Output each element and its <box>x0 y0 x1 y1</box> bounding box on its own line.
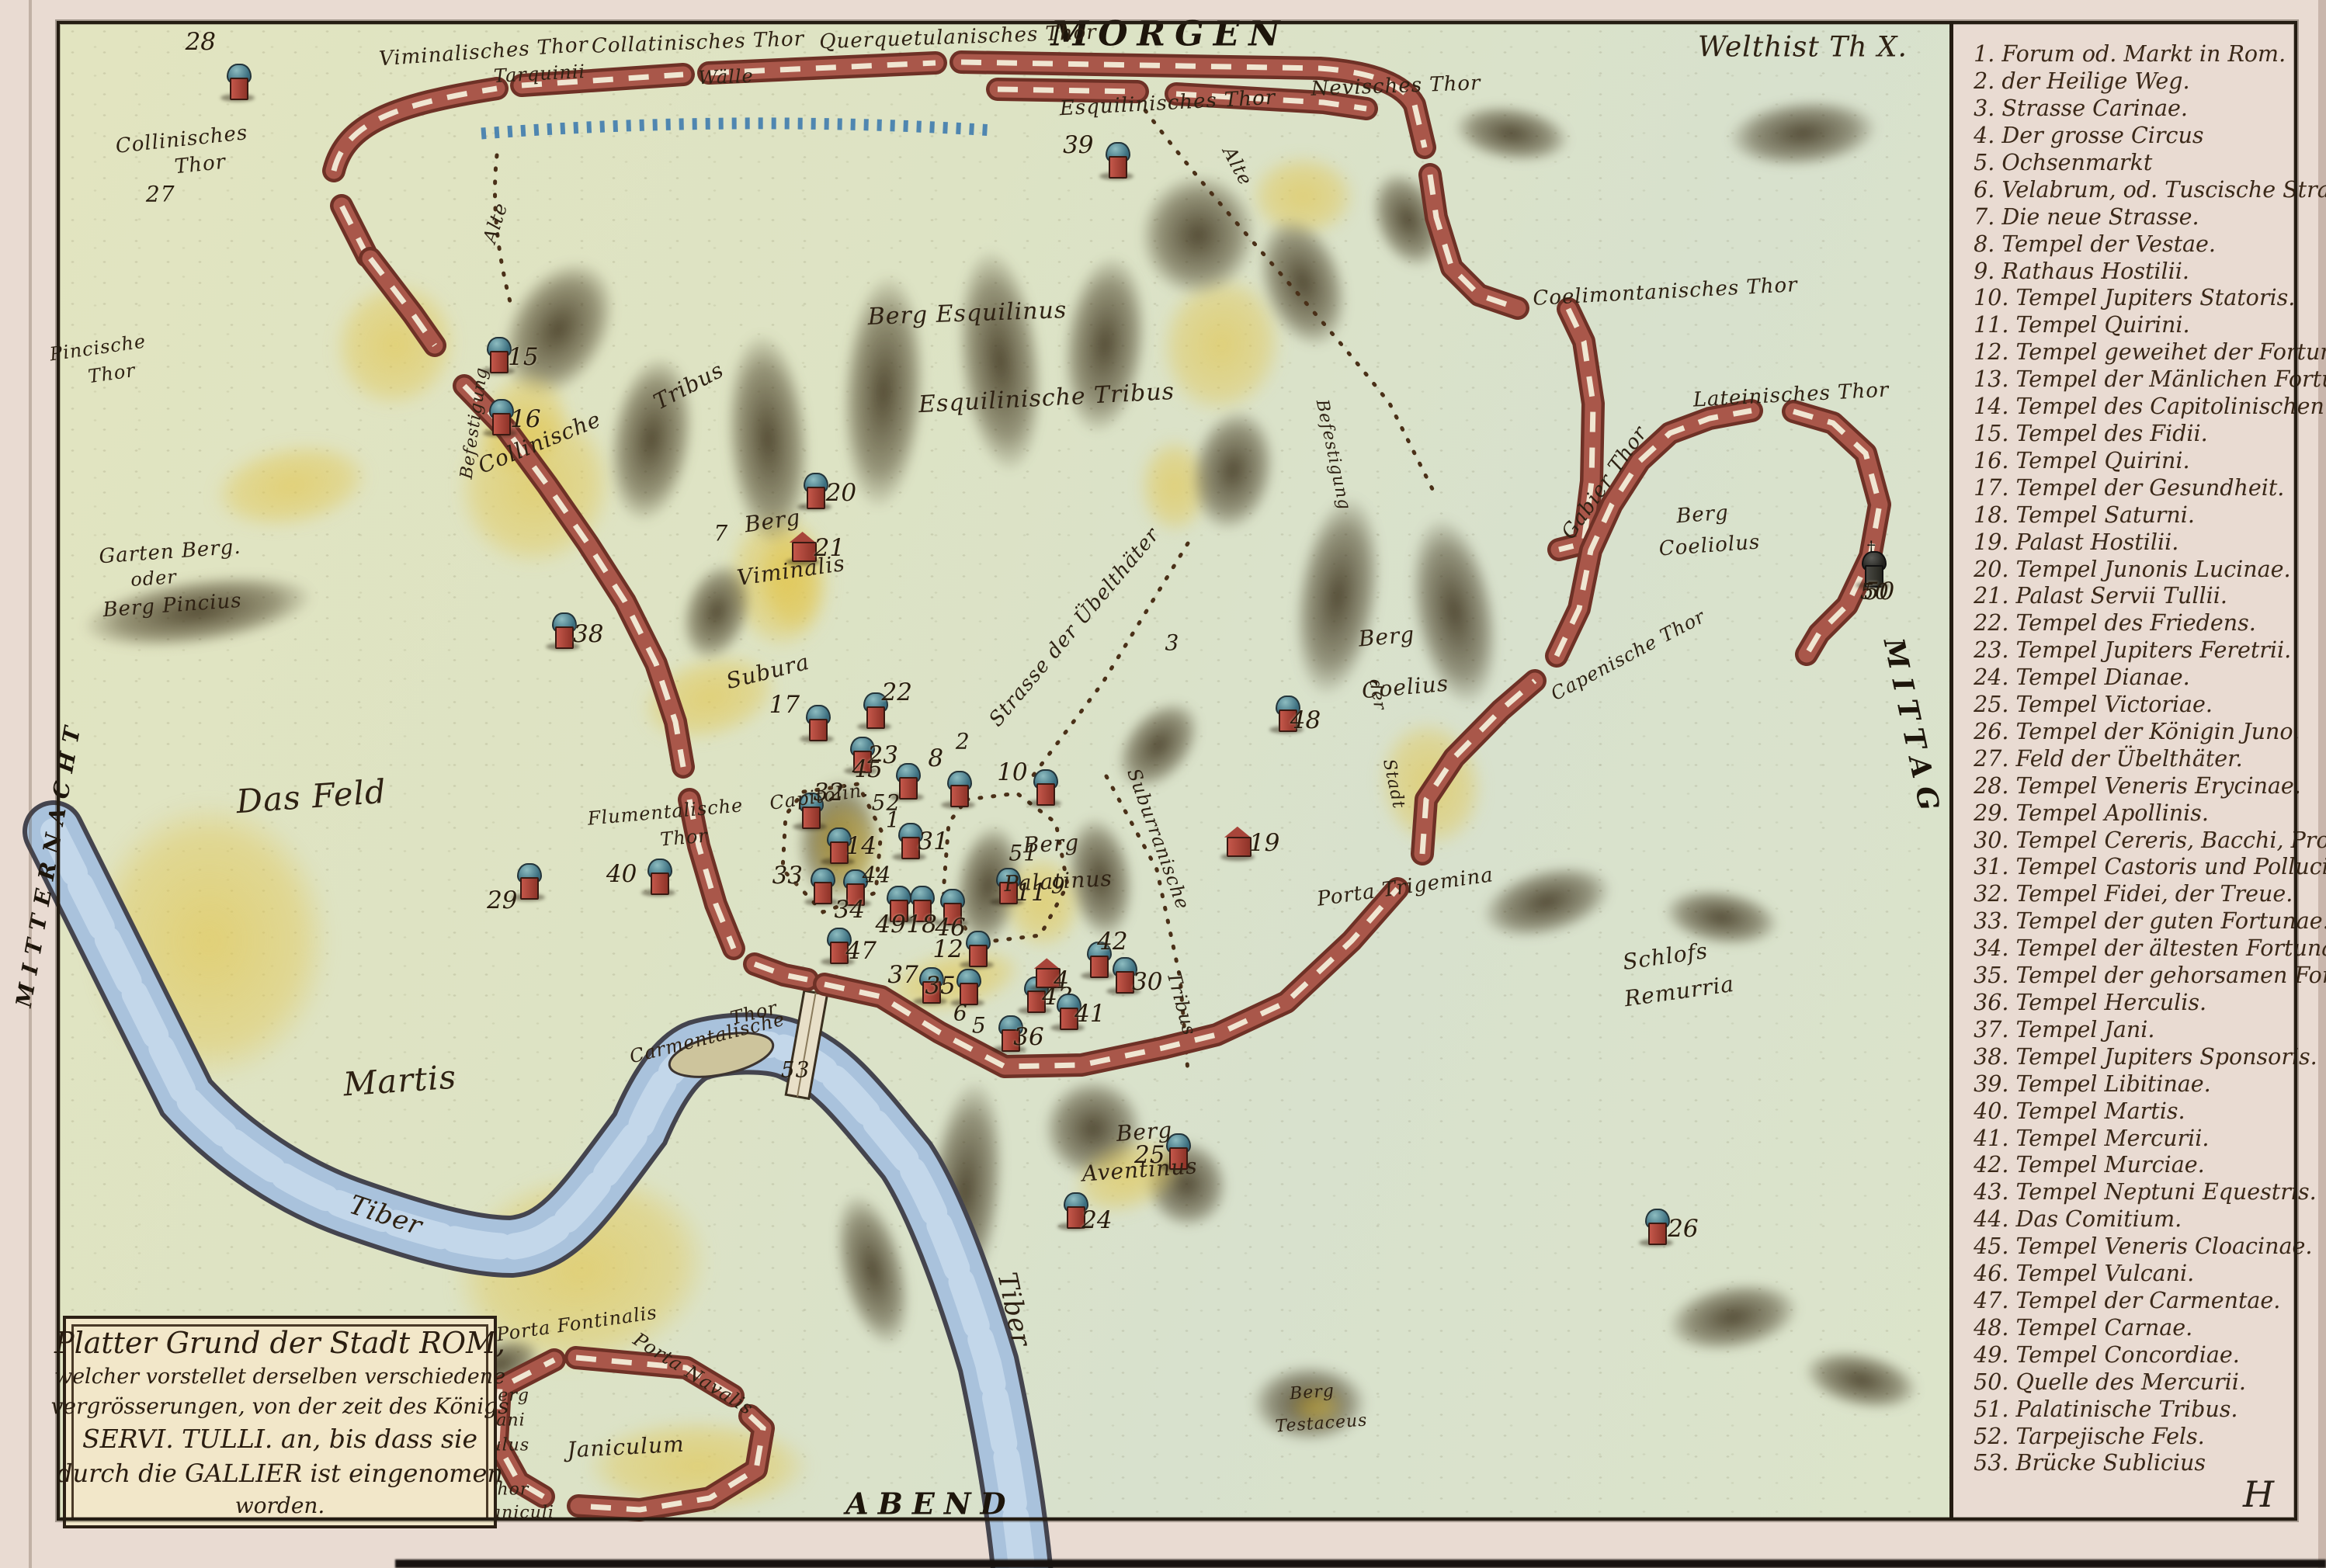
map-label: Viminalis <box>735 550 846 591</box>
map-label: Thor <box>173 151 227 179</box>
legend-item: 46. Tempel Vulcani. <box>1974 1261 2288 1288</box>
cartouche-line: SERVI. TULLI. an, bis dass sie <box>82 1424 477 1454</box>
legend-item: 23. Tempel Jupiters Feretrii. <box>1974 637 2288 664</box>
map-label: MITTERNACHT <box>11 716 87 1009</box>
map-label: Lateinisches Thor <box>1692 378 1890 411</box>
map-label: Coeliolus <box>1658 530 1761 560</box>
map-label: Suburranische <box>1123 765 1194 913</box>
legend-item: 24. Tempel Dianae. <box>1974 664 2288 692</box>
legend-item: 50. Quelle des Mercurii. <box>1974 1369 2288 1396</box>
map-label: Alte <box>1218 143 1257 189</box>
map-label: Berg Pincius <box>102 588 242 621</box>
legend-item: 31. Tempel Castoris und Pollucis. <box>1974 854 2288 881</box>
plate-mark: H <box>2243 1473 2274 1515</box>
map-label: Nevisches Thor <box>1311 71 1481 101</box>
map-label: Berg <box>1116 1117 1174 1147</box>
map-label: Flumentalische <box>587 795 745 830</box>
legend-item: 7. Die neue Strasse. <box>1974 204 2288 231</box>
map-label: Garten Berg. <box>98 536 241 569</box>
legend-item: 36. Tempel Herculis. <box>1974 990 2288 1017</box>
map-label: 50 <box>1860 578 1890 604</box>
legend-item: 37. Tempel Jani. <box>1974 1017 2288 1044</box>
map-label: 27 <box>146 182 175 207</box>
legend-item: 42. Tempel Murciae. <box>1974 1152 2288 1179</box>
map-label: oder <box>130 566 177 591</box>
map-label: Alte <box>479 199 512 245</box>
map-label: Collinische <box>474 406 605 478</box>
legend-divider <box>1949 21 1953 1521</box>
legend-item: 38. Tempel Jupiters Sponsoris. <box>1974 1044 2288 1071</box>
map-label: Collinisches <box>114 121 248 158</box>
map-label: 53 <box>781 1056 811 1082</box>
map-label: Collatinisches Thor <box>591 27 804 58</box>
legend-item: 27. Feld der Übelthäter. <box>1974 746 2288 773</box>
map-label: Coelimontanisches Thor <box>1533 273 1799 310</box>
map-label: 7 <box>713 520 728 546</box>
map-label: 2 <box>956 729 970 755</box>
legend-item: 18. Tempel Saturni. <box>1974 502 2288 529</box>
cartouche-line: Platter Grund der Stadt ROM, <box>54 1326 505 1360</box>
legend-item: 51. Palatinische Tribus. <box>1974 1396 2288 1424</box>
map-label: MITTAG <box>1876 636 1947 823</box>
map-label: Berg Esquilinus <box>868 297 1068 331</box>
legend-item: 45. Tempel Veneris Cloacinae. <box>1974 1233 2288 1261</box>
map-label: 9 <box>1051 873 1066 899</box>
map-label: Wälle <box>698 65 754 88</box>
legend-item: 40. Tempel Martis. <box>1974 1098 2288 1126</box>
map-label: Tiber <box>345 1189 426 1242</box>
map-label: Thor <box>659 824 709 850</box>
map-label: Tribus <box>649 356 727 415</box>
legend-item: 28. Tempel Veneris Erycinae. <box>1974 773 2288 800</box>
legend-item: 9. Rathaus Hostilii. <box>1974 258 2288 286</box>
map-label: Esquilinische Tribus <box>918 378 1175 418</box>
cartouche-line: worden. <box>235 1493 325 1518</box>
legend-item: 25. Tempel Victoriae. <box>1974 692 2288 719</box>
legend-item: 49. Tempel Concordiae. <box>1974 1342 2288 1369</box>
map-label: Aventinus <box>1081 1153 1198 1186</box>
map-label: Stadt <box>1379 758 1408 811</box>
legend-item: 15. Tempel des Fidii. <box>1974 421 2288 448</box>
map-label: Remurria <box>1623 970 1736 1011</box>
map-label: Berg <box>1675 501 1730 528</box>
legend-panel: 1. Forum od. Markt in Rom.2. der Heilige… <box>1955 23 2296 1520</box>
map-label: 44 <box>863 862 892 888</box>
legend-item: 6. Velabrum, od. Tuscische Strasse. <box>1974 177 2288 204</box>
legend-item: 52. Tarpejische Fels. <box>1974 1424 2288 1451</box>
map-label: Porta Navalis <box>630 1328 758 1419</box>
legend-item: 8. Tempel der Vestae. <box>1974 231 2288 258</box>
map-label: Capitolin. <box>768 779 870 814</box>
legend-item: 11. Tempel Quirini. <box>1974 312 2288 339</box>
legend-item: 34. Tempel der ältesten Fortunae. <box>1974 935 2288 963</box>
cartouche-line: vergrösserungen, von der zeit des Königs <box>51 1393 509 1419</box>
legend-item: 5. Ochsenmarkt <box>1974 150 2288 177</box>
legend-item: 19. Palast Hostilii. <box>1974 529 2288 557</box>
legend-item: 4. Der grosse Circus <box>1974 123 2288 150</box>
map-label: Martis <box>342 1057 458 1103</box>
legend-item: 20. Tempel Junonis Lucinae. <box>1974 557 2288 584</box>
legend-item: 22. Tempel des Friedens. <box>1974 610 2288 637</box>
legend-item: 41. Tempel Mercurii. <box>1974 1126 2288 1153</box>
map-label: Janiculum <box>567 1431 686 1463</box>
legend-item: 2. der Heilige Weg. <box>1974 68 2288 95</box>
map-label: Tarquinii <box>493 61 586 87</box>
map-label: 6 <box>953 1000 968 1025</box>
legend-item: 16. Tempel Quirini. <box>1974 448 2288 475</box>
map-label: Berg <box>1357 622 1415 652</box>
legend-item: 43. Tempel Neptuni Equestris. <box>1974 1179 2288 1206</box>
map-label: Subura <box>724 648 812 693</box>
map-label: ABEND <box>845 1486 1015 1521</box>
cartouche-line: durch die GALLIER ist eingenomen <box>57 1459 503 1488</box>
legend-item: 39. Tempel Libitinae. <box>1974 1071 2288 1098</box>
legend-item: 21. Palast Servii Tullii. <box>1974 583 2288 610</box>
map-label: Schlofs <box>1621 938 1710 975</box>
legend-item: 35. Tempel der gehorsamen Fortunae. <box>1974 963 2288 990</box>
map-label: 51 <box>1009 840 1038 866</box>
map-label: Porta Trigemina <box>1315 864 1495 912</box>
map-label: Tribus <box>1163 969 1201 1038</box>
legend-item: 10. Tempel Jupiters Statoris. <box>1974 285 2288 312</box>
legend-item: 53. Brücke Sublicius <box>1974 1450 2288 1477</box>
map-label: Welthist Th X. <box>1698 31 1908 63</box>
map-label: Berg <box>742 504 801 537</box>
legend-item: 32. Tempel Fidei, der Treue. <box>1974 881 2288 908</box>
map-label: 1 <box>886 807 901 833</box>
legend-item: 47. Tempel der Carmentae. <box>1974 1288 2288 1315</box>
paper-edge <box>2318 0 2326 1568</box>
cartouche-line: welcher vorstellet derselben verschieden… <box>54 1365 505 1389</box>
legend-item: 33. Tempel der guten Fortunae. <box>1974 908 2288 935</box>
paper-fold <box>29 0 32 1568</box>
map-label: Testaceus <box>1274 1411 1368 1437</box>
map-label: Capenische Thor <box>1547 605 1709 705</box>
legend-item: 12. Tempel geweihet der Fortunae. <box>1974 339 2288 366</box>
legend-item: 1. Forum od. Markt in Rom. <box>1974 41 2288 68</box>
map-sheet: 2815163820213917222345810321431333449184… <box>0 0 2326 1568</box>
legend-item: 17. Tempel der Gesundheit. <box>1974 475 2288 502</box>
map-label: Tiber <box>991 1269 1037 1349</box>
title-cartouche: Platter Grund der Stadt ROM, welcher vor… <box>63 1316 497 1529</box>
legend-item: 14. Tempel des Capitolinischen Jupiters. <box>1974 394 2288 421</box>
map-label: Thor <box>86 359 137 387</box>
map-label: Gabier Thor <box>1557 422 1652 544</box>
legend-item: 13. Tempel der Mänlichen Fortunae. <box>1974 366 2288 394</box>
legend-item: 26. Tempel der Königin Juno. <box>1974 719 2288 746</box>
map-label: Esquilinisches Thor <box>1059 86 1276 121</box>
map-label: Das Feld <box>235 772 388 820</box>
legend-list: 1. Forum od. Markt in Rom.2. der Heilige… <box>1974 41 2288 1477</box>
map-label: Strasse der Übelthäter <box>984 523 1165 731</box>
map-label: Berg <box>1289 1381 1335 1403</box>
legend-item: 44. Das Comitium. <box>1974 1206 2288 1233</box>
legend-item: 30. Tempel Cereris, Bacchi, Proserpinae. <box>1974 827 2288 855</box>
legend-item: 3. Strasse Carinae. <box>1974 95 2288 123</box>
legend-item: 48. Tempel Carnae. <box>1974 1315 2288 1342</box>
map-label: 5 <box>972 1013 987 1039</box>
ink-smear <box>395 1559 2326 1568</box>
map-label: 3 <box>1165 630 1180 656</box>
map-label: Befestigung <box>1311 397 1354 512</box>
legend-item: 29. Tempel Apollinis. <box>1974 800 2288 827</box>
